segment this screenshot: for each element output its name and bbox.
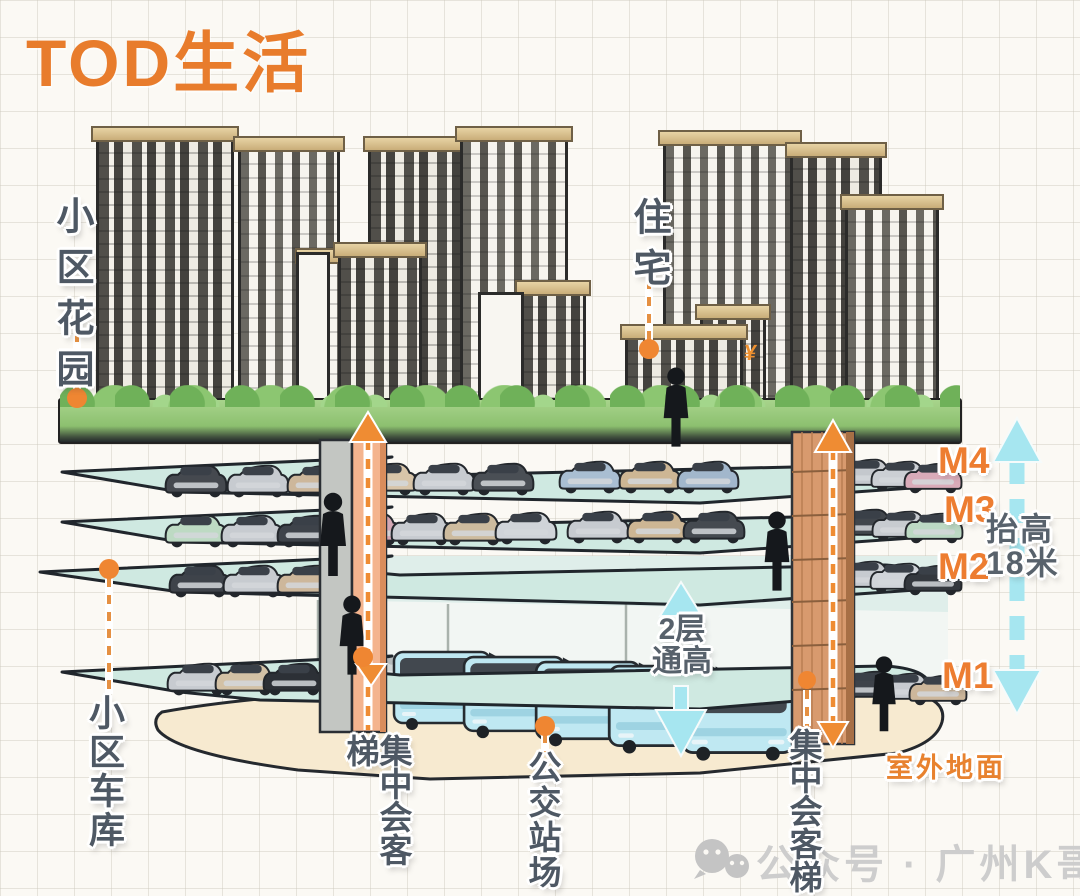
callout-outdoor-ground: 室外地面 (886, 746, 1006, 785)
callout-dot (639, 339, 659, 359)
double-height-label: 2层 通高 (644, 614, 720, 678)
double-height-line2: 通高 (644, 646, 720, 678)
double-height-line1: 2层 (644, 614, 720, 646)
raise-height-label: 抬高 18米 (986, 512, 1060, 580)
callout-elevator-left: 集中会客梯 (344, 734, 410, 896)
tod-infographic: ¥ (0, 0, 1080, 896)
raise-line2: 18米 (986, 546, 1060, 580)
callout-garden: 小区花园 (52, 196, 90, 400)
page-title: TOD生活 (26, 10, 311, 106)
callout-bus-station: 公交站场 (526, 750, 559, 890)
level-label-m4: M4 (938, 440, 989, 482)
callout-dot (353, 647, 373, 667)
elevator-shaft-left (320, 440, 386, 732)
elevator-tower-right (792, 432, 854, 744)
raise-line1: 抬高 (986, 512, 1060, 546)
level-label-m1: M1 (942, 655, 993, 697)
callout-dot (99, 559, 119, 579)
callout-dot (798, 671, 816, 689)
callout-residence: 住宅 (629, 197, 667, 299)
callout-elevator-right: 集中会客梯 (787, 728, 820, 893)
callout-garage: 小区车库 (86, 694, 122, 850)
watermark: 公众号 · 广州K哥说房 (694, 839, 1080, 887)
wechat-icon (694, 839, 749, 879)
level-label-m2: M2 (938, 546, 989, 588)
callout-dot (535, 716, 555, 736)
